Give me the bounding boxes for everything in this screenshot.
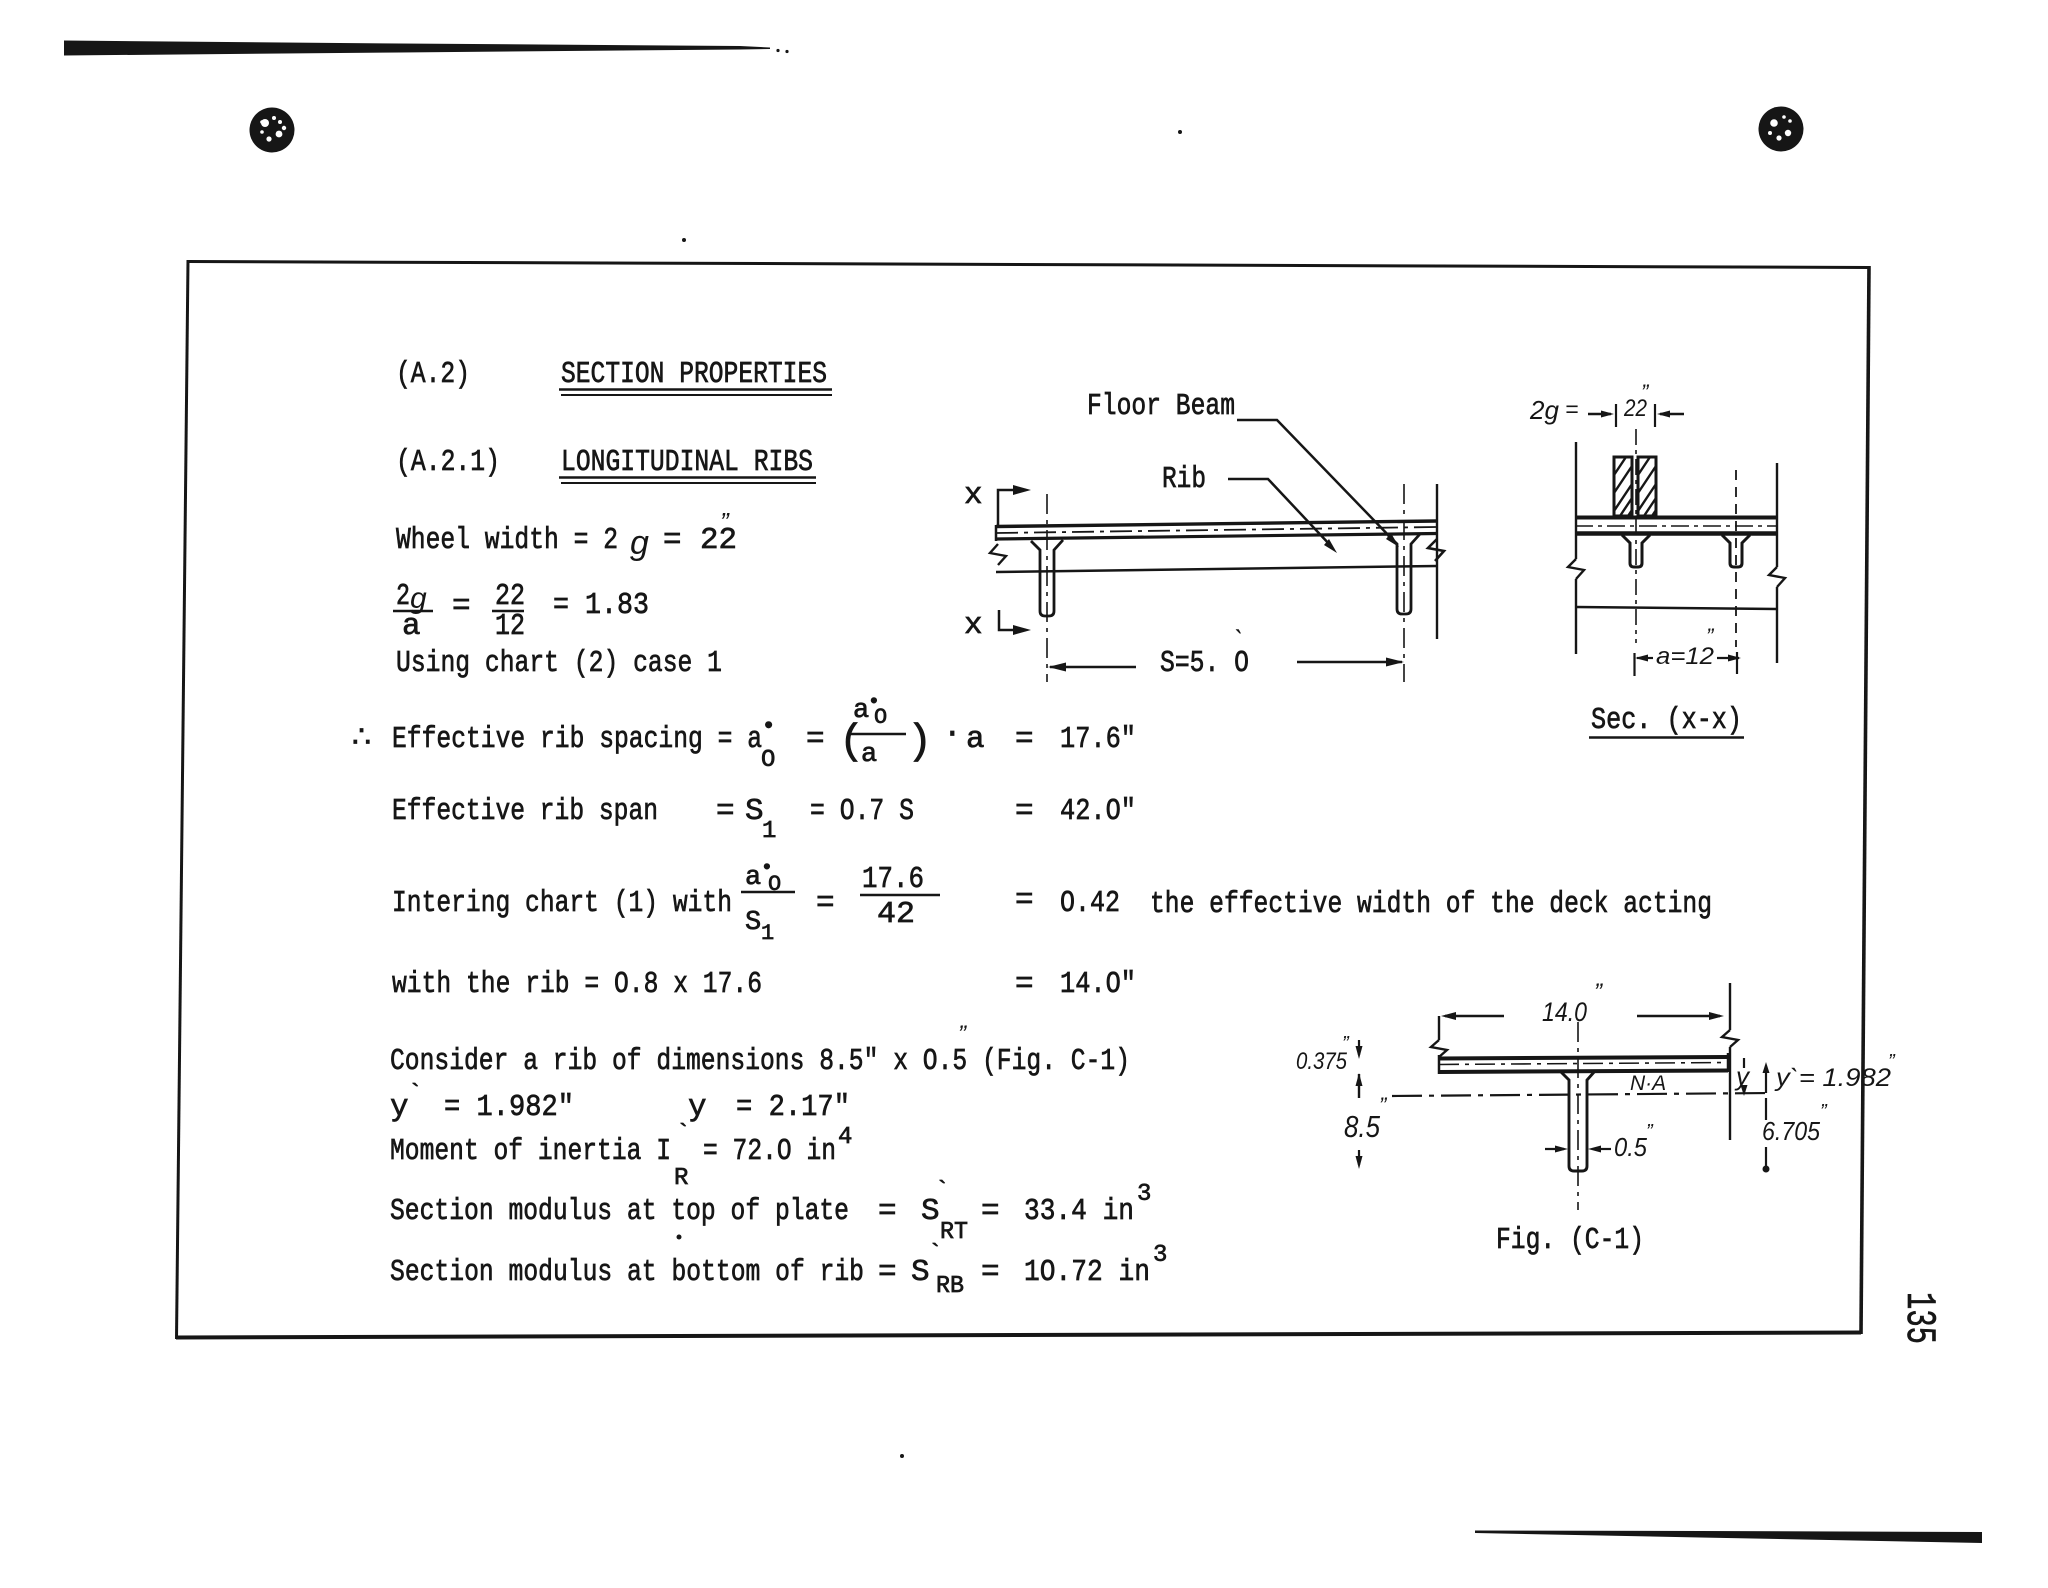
svg-text:S: S: [911, 1255, 930, 1290]
svg-text:=: =: [806, 722, 825, 757]
svg-text:42.O": 42.O": [1060, 794, 1136, 829]
svg-text:3: 3: [1137, 1181, 1151, 1208]
svg-text:=: =: [452, 589, 471, 624]
svg-text:g: g: [630, 524, 649, 562]
svg-text:=: =: [716, 794, 735, 829]
svg-text:R: R: [674, 1165, 688, 1192]
svg-text:Consider a rib of dimensions 8: Consider a rib of dimensions 8.5" x O.5 …: [390, 1044, 1130, 1079]
svg-text:`: `: [408, 1081, 422, 1108]
svg-text:= O.7 S: = O.7 S: [810, 794, 914, 829]
svg-text:135: 135: [1895, 1292, 1943, 1344]
svg-text:Section modulus at bottom of r: Section modulus at bottom of rib: [390, 1255, 864, 1290]
svg-text:SECTION PROPERTIES: SECTION PROPERTIES: [561, 357, 827, 392]
svg-text:N·A: N·A: [1630, 1072, 1666, 1095]
svg-text:=: =: [1015, 722, 1034, 757]
svg-text:12: 12: [495, 609, 525, 644]
svg-text:6.705: 6.705: [1762, 1116, 1820, 1146]
svg-text:0.5: 0.5: [1614, 1132, 1647, 1162]
svg-text:Moment of inertia I: Moment of inertia I: [390, 1134, 671, 1169]
svg-text:x: x: [964, 478, 983, 513]
svg-text:`: `: [935, 1178, 949, 1205]
svg-text:a: a: [966, 722, 985, 757]
svg-text:1: 1: [762, 818, 776, 845]
svg-text:”: ”: [958, 1021, 967, 1048]
svg-text:4: 4: [838, 1124, 852, 1151]
svg-text:8.5: 8.5: [1344, 1109, 1381, 1144]
svg-text:RB: RB: [936, 1273, 964, 1300]
svg-text:x: x: [964, 608, 983, 643]
svg-text:Effective rib span: Effective rib span: [392, 794, 658, 829]
svg-text:S: S: [745, 794, 764, 829]
svg-text:1O.72 in: 1O.72 in: [1024, 1255, 1150, 1290]
svg-text:RT: RT: [940, 1219, 968, 1246]
svg-text:”: ”: [1594, 979, 1603, 1006]
svg-text:= 1.982": = 1.982": [444, 1090, 574, 1125]
svg-text:= 72.O in: = 72.O in: [703, 1134, 836, 1169]
svg-text:=: =: [878, 1255, 897, 1290]
svg-text:y: y: [390, 1090, 409, 1125]
svg-text:Effective rib spacing = a: Effective rib spacing = a: [392, 722, 762, 757]
svg-text:with the rib = O.8 x 17.6: with the rib = O.8 x 17.6: [392, 967, 762, 1002]
svg-text:=: =: [1015, 883, 1034, 918]
svg-text:=: =: [981, 1255, 1000, 1290]
svg-text:=: =: [1015, 794, 1034, 829]
svg-text:2g: 2g: [1529, 395, 1559, 425]
svg-text:= 1.83: = 1.83: [553, 588, 649, 623]
svg-text:y`= 1.982: y`= 1.982: [1774, 1064, 1891, 1092]
svg-text:●: ●: [764, 717, 773, 734]
svg-text:Floor Beam: Floor Beam: [1087, 389, 1235, 424]
svg-text:= 2.17": = 2.17": [736, 1090, 850, 1125]
svg-text:42: 42: [877, 897, 915, 932]
svg-text:`: `: [928, 1241, 942, 1268]
svg-text:=: =: [981, 1194, 1000, 1229]
svg-text:a: a: [853, 696, 869, 726]
svg-text:`: `: [676, 1121, 690, 1148]
svg-text:=: =: [878, 1194, 897, 1229]
svg-text:=: =: [1565, 396, 1578, 422]
svg-text:33.4 in: 33.4 in: [1024, 1194, 1134, 1229]
svg-text:a: a: [745, 863, 761, 893]
svg-text:Wheel width = 2: Wheel width = 2: [396, 523, 618, 558]
svg-text:=: =: [1015, 967, 1034, 1002]
svg-text:(A.2): (A.2): [396, 357, 470, 392]
svg-text:y: y: [688, 1090, 707, 1125]
svg-text:LONGITUDINAL RIBS: LONGITUDINAL RIBS: [561, 445, 813, 480]
svg-text:O: O: [761, 747, 775, 774]
svg-text:Intering chart (1) with: Intering chart (1) with: [392, 886, 732, 921]
svg-text:Sec. (x-x): Sec. (x-x): [1591, 703, 1742, 738]
svg-text:the effective width of the dec: the effective width of the deck acting: [1150, 887, 1712, 922]
svg-text:Using chart (2) case 1: Using chart (2) case 1: [396, 646, 722, 681]
svg-text:17.6": 17.6": [1060, 722, 1136, 757]
svg-text:0.375: 0.375: [1296, 1048, 1348, 1075]
svg-text:a: a: [861, 740, 877, 770]
svg-text:Fig. (C-1): Fig. (C-1): [1496, 1223, 1644, 1258]
svg-text:∴: ∴: [352, 723, 371, 757]
svg-text:Rib: Rib: [1162, 462, 1206, 497]
svg-text:14.O": 14.O": [1060, 967, 1136, 1002]
svg-text:Section modulus at top of plat: Section modulus at top of plate: [390, 1194, 849, 1229]
svg-text:”: ”: [720, 507, 730, 537]
svg-text:O.42: O.42: [1060, 886, 1120, 921]
svg-text:17.6: 17.6: [862, 862, 924, 897]
svg-text:O: O: [874, 705, 887, 730]
svg-text:·: ·: [943, 717, 962, 752]
svg-text:14.0: 14.0: [1542, 997, 1587, 1027]
svg-text:a: a: [402, 609, 421, 644]
svg-text:3: 3: [1153, 1242, 1167, 1269]
svg-text:S: S: [745, 908, 761, 938]
svg-text:): ): [907, 718, 932, 766]
svg-text:=: =: [816, 886, 835, 921]
svg-text:(A.2.1): (A.2.1): [396, 445, 500, 480]
svg-text:1: 1: [761, 921, 774, 946]
svg-text:`: `: [1234, 625, 1243, 656]
